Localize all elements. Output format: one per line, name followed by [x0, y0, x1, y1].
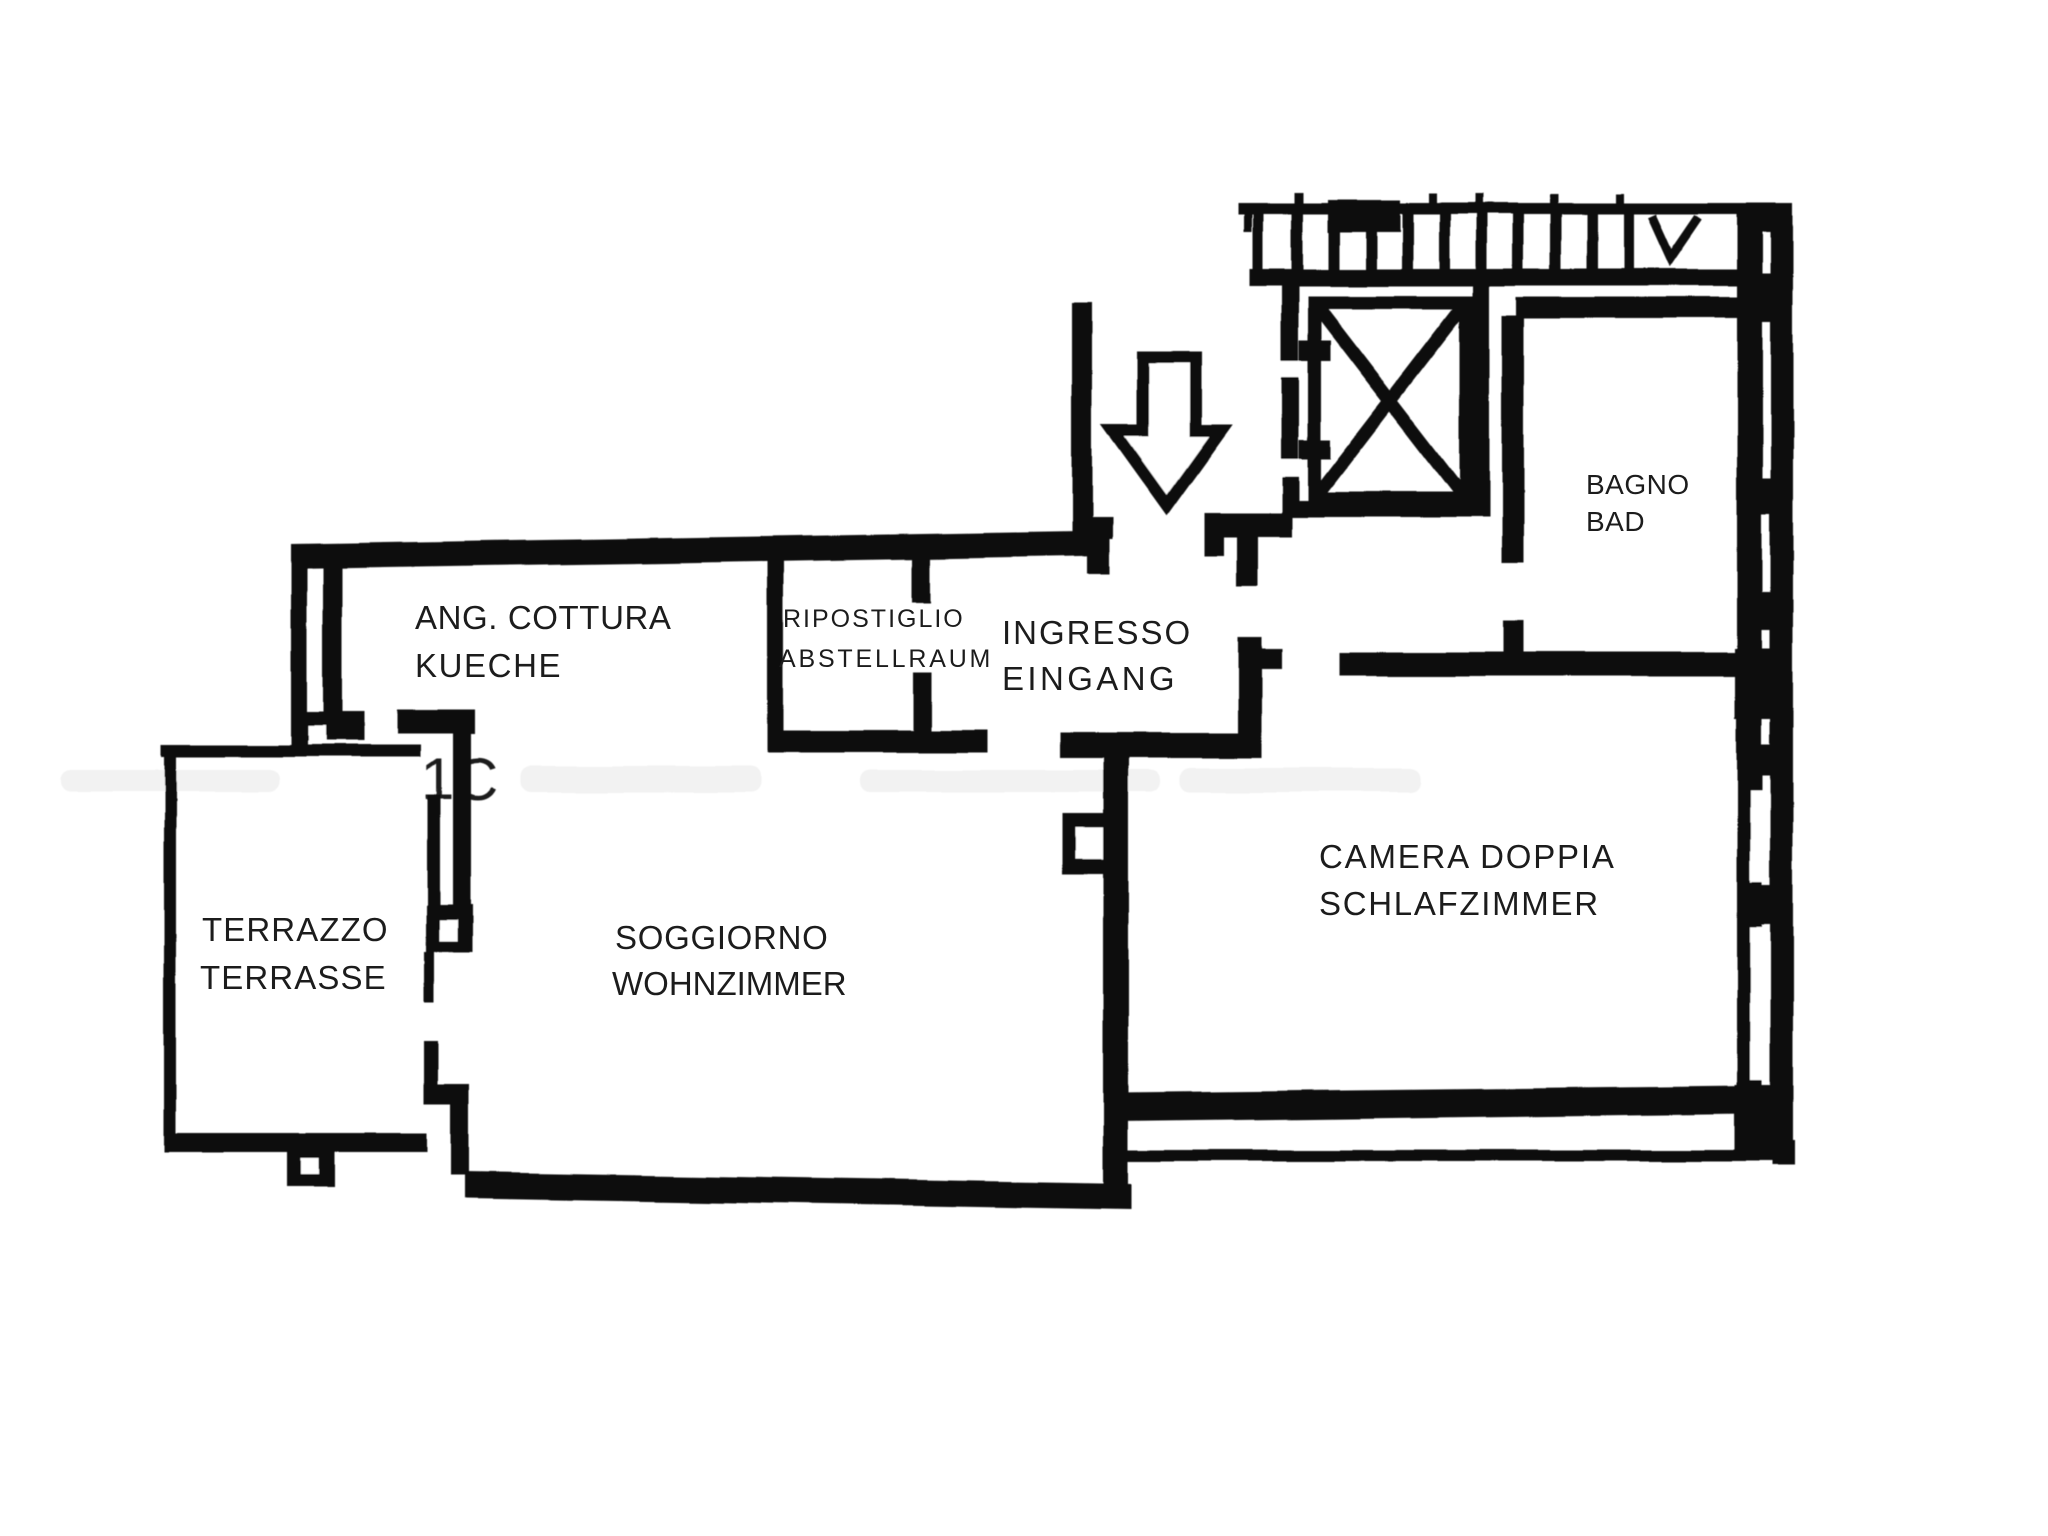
- svg-text:RIPOSTIGLIO: RIPOSTIGLIO: [783, 605, 965, 633]
- svg-text:TERRAZZO: TERRAZZO: [202, 911, 389, 948]
- svg-text:WOHNZIMMER: WOHNZIMMER: [612, 965, 847, 1002]
- svg-text:SOGGIORNO: SOGGIORNO: [615, 919, 829, 956]
- svg-text:TERRASSE: TERRASSE: [200, 959, 387, 996]
- svg-text:ANG. COTTURA: ANG. COTTURA: [415, 599, 672, 636]
- svg-text:SCHLAFZIMMER: SCHLAFZIMMER: [1319, 885, 1600, 922]
- svg-text:KUECHE: KUECHE: [415, 647, 562, 684]
- svg-text:ABSTELLRAUM: ABSTELLRAUM: [779, 645, 993, 673]
- svg-text:CAMERA DOPPIA: CAMERA DOPPIA: [1319, 838, 1616, 875]
- svg-text:INGRESSO: INGRESSO: [1002, 614, 1192, 651]
- svg-text:BAGNO: BAGNO: [1586, 469, 1690, 500]
- svg-text:BAD: BAD: [1586, 506, 1645, 537]
- svg-text:EINGANG: EINGANG: [1002, 660, 1178, 697]
